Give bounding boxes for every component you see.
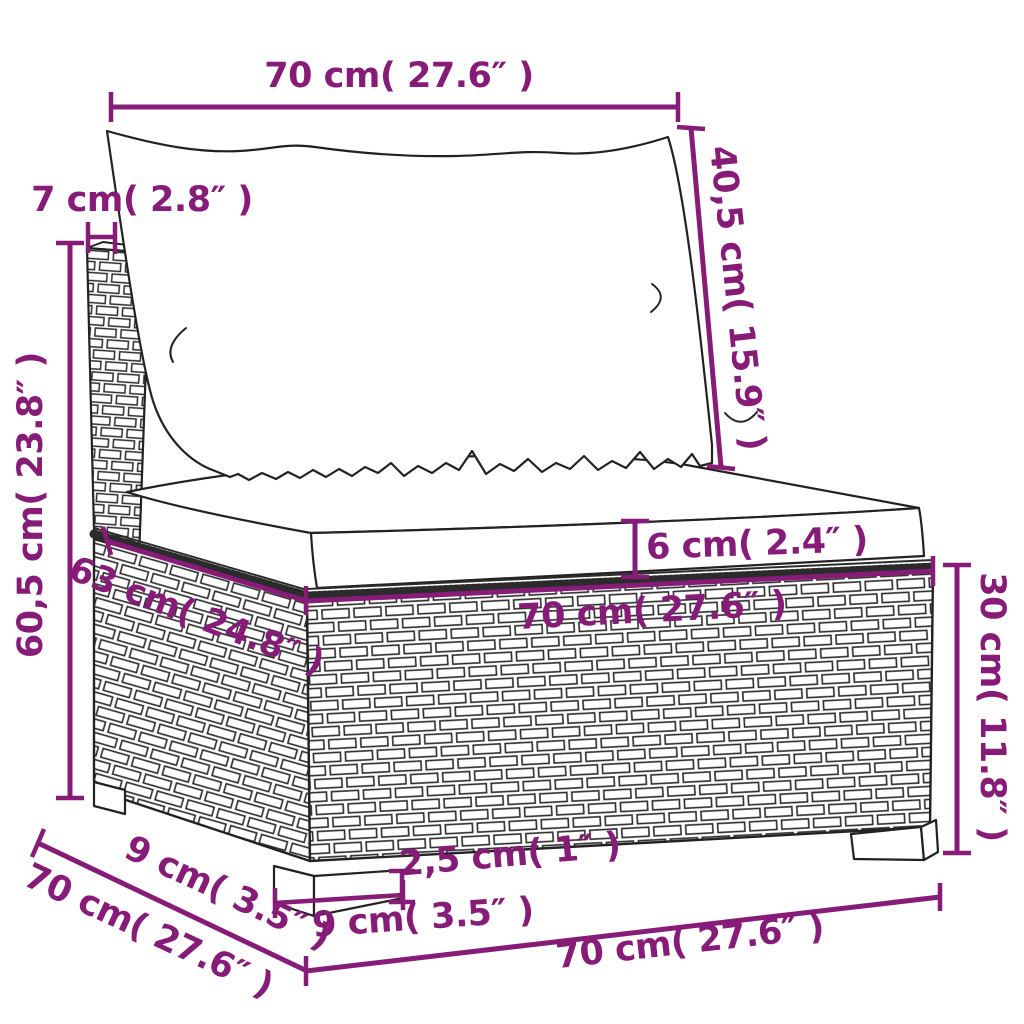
dim-base-height bbox=[943, 565, 971, 853]
label-back-cushion-height: 40,5 cm( 15.9″ ) bbox=[701, 144, 773, 453]
label-seat-cushion-thickness: 6 cm( 2.4″ ) bbox=[645, 520, 868, 568]
diagram-canvas: 70 cm( 27.6″ ) 7 cm( 2.8″ ) 40,5 cm( 15.… bbox=[0, 0, 1024, 1024]
foot-front-right-front bbox=[851, 827, 924, 860]
label-overall-height: 60,5 cm( 23.8″ ) bbox=[11, 352, 51, 658]
label-back-post-thickness: 7 cm( 2.8″ ) bbox=[31, 180, 253, 220]
dim-overall-height bbox=[56, 243, 84, 798]
label-back-cushion-width: 70 cm( 27.6″ ) bbox=[264, 56, 533, 96]
product-dimension-diagram: 70 cm( 27.6″ ) 7 cm( 2.8″ ) 40,5 cm( 15.… bbox=[0, 0, 1024, 1024]
dim-back-cushion-width bbox=[111, 92, 678, 122]
label-base-height: 30 cm( 11.8″ ) bbox=[972, 572, 1012, 841]
label-overall-width: 70 cm( 27.6″ ) bbox=[554, 907, 826, 977]
foot-front-right-side bbox=[921, 820, 938, 860]
